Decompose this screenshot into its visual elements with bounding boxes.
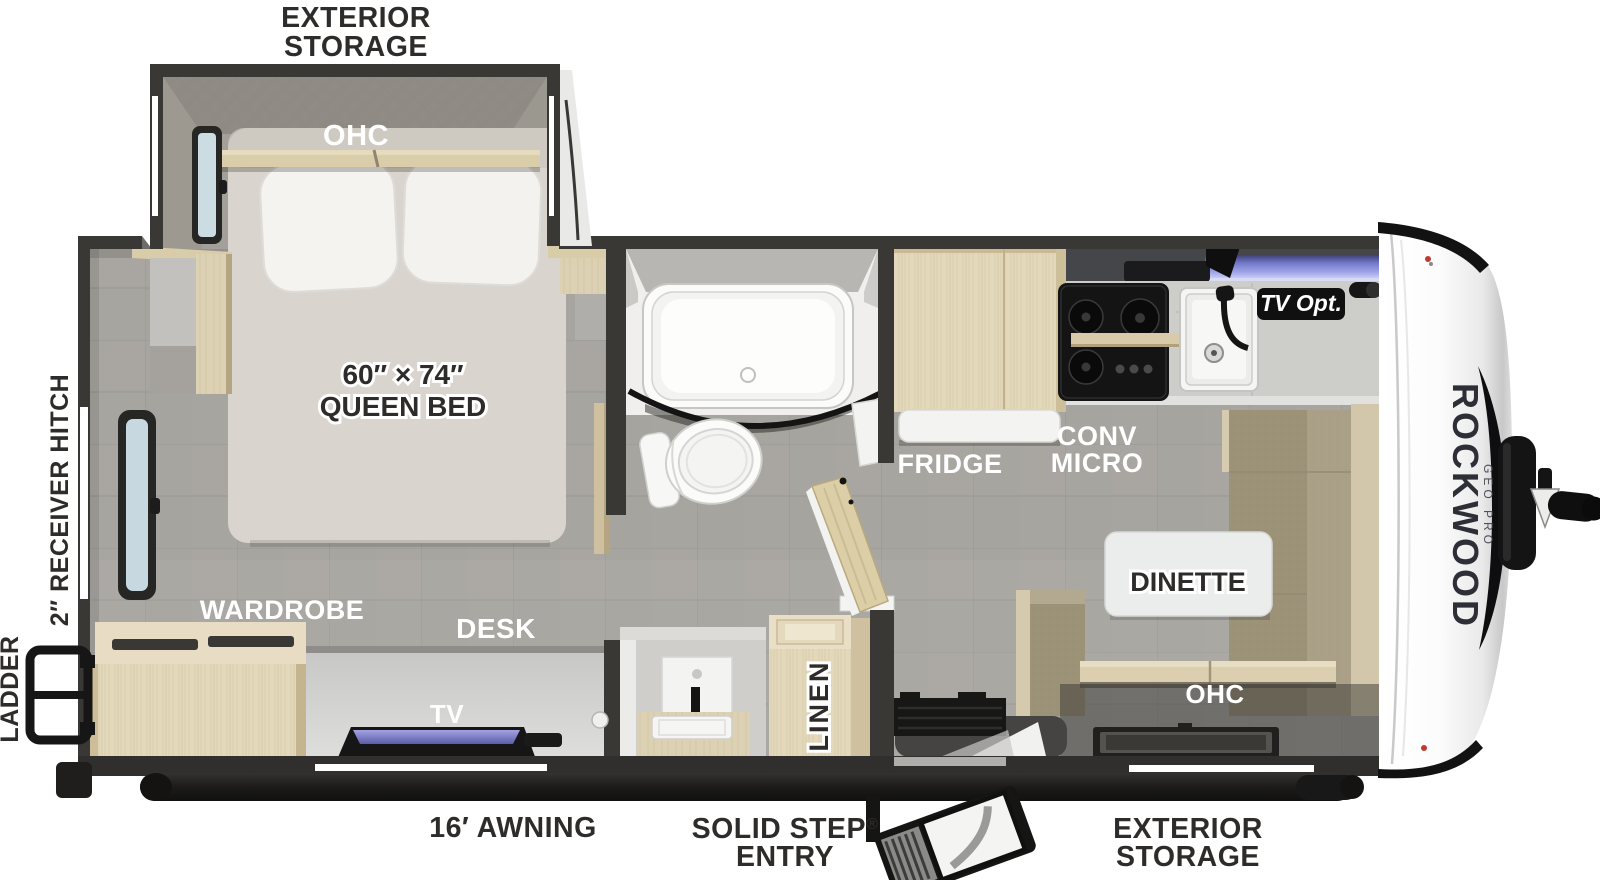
svg-text:2″ RECEIVER HITCH: 2″ RECEIVER HITCH — [46, 374, 74, 626]
svg-text:STORAGE: STORAGE — [1116, 841, 1260, 873]
svg-text:STORAGE: STORAGE — [284, 31, 428, 63]
svg-text:TV: TV — [430, 699, 464, 729]
svg-text:60″ × 74″: 60″ × 74″ — [342, 359, 463, 390]
svg-text:TV Opt.: TV Opt. — [1260, 290, 1342, 316]
svg-text:OHC: OHC — [1185, 679, 1244, 709]
svg-text:QUEEN BED: QUEEN BED — [320, 391, 486, 422]
svg-text:FRIDGE: FRIDGE — [897, 449, 1002, 479]
svg-text:ROCKWOOD: ROCKWOOD — [1445, 383, 1486, 629]
svg-text:ENTRY: ENTRY — [736, 841, 834, 873]
svg-text:MICRO: MICRO — [1051, 448, 1144, 478]
svg-text:LADDER: LADDER — [0, 635, 24, 742]
svg-text:CONV: CONV — [1057, 421, 1137, 451]
svg-text:GEO PRO: GEO PRO — [1481, 464, 1495, 548]
svg-text:OHC: OHC — [323, 120, 389, 152]
svg-text:DESK: DESK — [456, 613, 536, 644]
svg-text:16′ AWNING: 16′ AWNING — [429, 812, 597, 844]
svg-text:LINEN: LINEN — [804, 661, 834, 752]
svg-text:WARDROBE: WARDROBE — [200, 595, 365, 625]
svg-text:DINETTE: DINETTE — [1130, 567, 1246, 597]
svg-text:EXTERIOR: EXTERIOR — [281, 2, 431, 34]
